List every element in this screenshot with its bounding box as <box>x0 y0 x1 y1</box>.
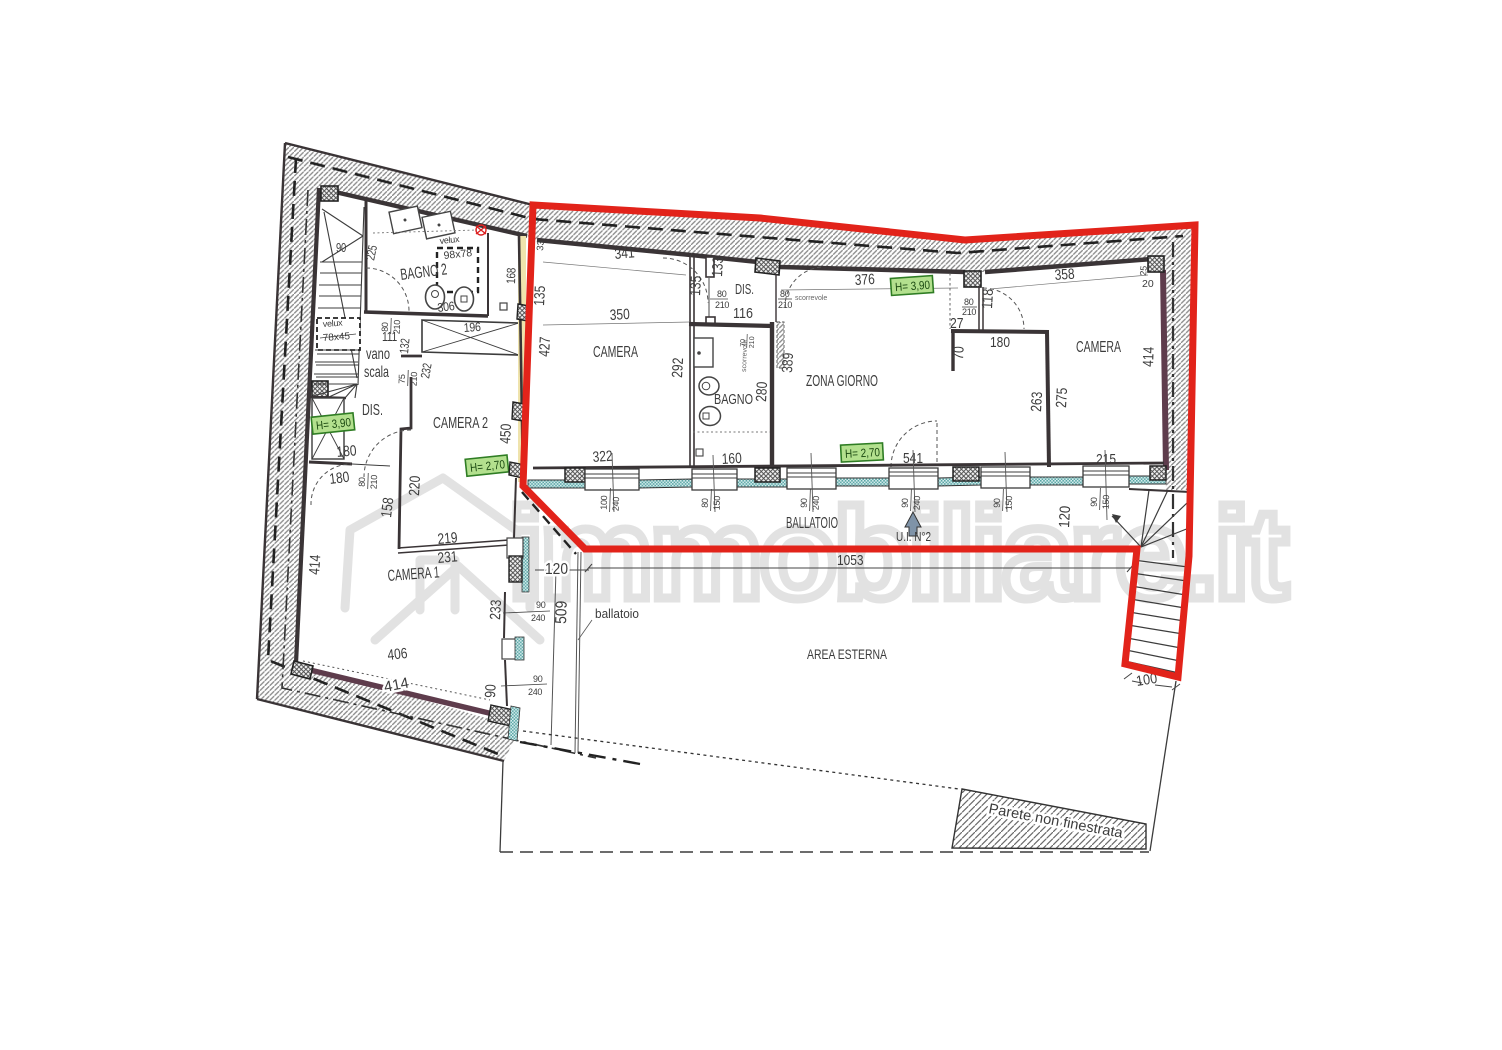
svg-text:20: 20 <box>1142 278 1154 290</box>
svg-text:231: 231 <box>437 548 458 567</box>
svg-text:CAMERA: CAMERA <box>593 344 638 361</box>
svg-text:78x45: 78x45 <box>322 331 350 344</box>
svg-text:velux: velux <box>439 234 460 246</box>
svg-text:135: 135 <box>687 275 705 296</box>
svg-text:ZONA GIORNO: ZONA GIORNO <box>806 373 878 390</box>
svg-text:210: 210 <box>962 307 976 317</box>
svg-text:120: 120 <box>545 561 568 578</box>
svg-text:406: 406 <box>387 645 409 664</box>
svg-text:AREA ESTERNA: AREA ESTERNA <box>807 646 887 662</box>
svg-text:90: 90 <box>482 684 500 698</box>
svg-text:306: 306 <box>437 299 456 315</box>
svg-text:376: 376 <box>854 271 875 289</box>
svg-text:210: 210 <box>369 475 379 490</box>
svg-text:168: 168 <box>504 267 519 284</box>
svg-text:292: 292 <box>669 357 687 378</box>
svg-text:70: 70 <box>950 346 968 360</box>
svg-text:275: 275 <box>1053 387 1071 408</box>
svg-text:160: 160 <box>721 450 742 468</box>
svg-text:414: 414 <box>1140 347 1158 368</box>
svg-text:240: 240 <box>611 497 621 512</box>
svg-text:scorrevole: scorrevole <box>741 339 749 372</box>
svg-text:1053: 1053 <box>837 552 864 569</box>
svg-text:BAGNO 2: BAGNO 2 <box>399 261 448 284</box>
svg-text:H= 2,70: H= 2,70 <box>845 445 881 461</box>
svg-text:118: 118 <box>979 288 997 309</box>
svg-text:232: 232 <box>418 362 434 379</box>
svg-text:90: 90 <box>1089 497 1099 507</box>
svg-text:233: 233 <box>487 599 505 620</box>
svg-text:CAMERA 2: CAMERA 2 <box>433 415 488 432</box>
svg-text:33: 33 <box>535 240 547 251</box>
svg-text:263: 263 <box>1028 391 1046 412</box>
svg-text:196: 196 <box>463 320 481 335</box>
svg-text:DIS.: DIS. <box>362 402 383 419</box>
svg-text:450: 450 <box>497 423 515 444</box>
svg-text:358: 358 <box>1054 266 1075 284</box>
svg-text:210: 210 <box>749 336 756 348</box>
svg-text:H= 3,90: H= 3,90 <box>895 278 931 294</box>
svg-text:135: 135 <box>531 285 549 306</box>
svg-text:341: 341 <box>614 244 635 263</box>
svg-text:240: 240 <box>912 496 922 511</box>
svg-text:velux: velux <box>322 318 343 329</box>
svg-text:BALLATOIO: BALLATOIO <box>786 515 838 532</box>
svg-text:DIS.: DIS. <box>735 281 754 298</box>
svg-text:CAMERA 1: CAMERA 1 <box>387 564 440 585</box>
svg-text:220: 220 <box>406 475 424 496</box>
svg-text:90: 90 <box>533 674 543 684</box>
svg-text:75: 75 <box>397 374 407 384</box>
svg-text:150: 150 <box>1004 496 1014 511</box>
svg-text:ballatoio: ballatoio <box>595 606 639 621</box>
svg-text:90: 90 <box>799 498 809 508</box>
svg-text:132: 132 <box>397 338 413 355</box>
svg-text:scorrevole: scorrevole <box>795 295 827 302</box>
svg-text:80: 80 <box>357 477 367 487</box>
svg-text:116: 116 <box>733 305 753 322</box>
svg-text:180: 180 <box>328 469 350 488</box>
svg-text:90: 90 <box>336 241 346 255</box>
svg-text:219: 219 <box>437 529 458 548</box>
svg-text:427: 427 <box>536 336 554 357</box>
svg-text:350: 350 <box>609 306 630 324</box>
svg-text:210: 210 <box>392 320 402 335</box>
svg-text:80: 80 <box>964 297 974 307</box>
svg-text:98x78: 98x78 <box>443 247 473 262</box>
svg-text:CAMERA: CAMERA <box>1076 339 1121 356</box>
svg-text:90: 90 <box>900 498 910 508</box>
svg-text:scala: scala <box>364 364 389 381</box>
svg-text:25: 25 <box>1138 265 1149 276</box>
svg-text:280: 280 <box>753 381 771 402</box>
svg-text:389: 389 <box>779 352 797 373</box>
svg-text:immobiliare.it: immobiliare.it <box>508 483 1288 626</box>
svg-text:150: 150 <box>1101 495 1111 510</box>
svg-text:133: 133 <box>709 256 727 277</box>
svg-text:180: 180 <box>990 334 1010 351</box>
svg-text:210: 210 <box>715 300 729 310</box>
svg-text:80: 80 <box>700 498 710 508</box>
svg-text:120: 120 <box>1056 505 1074 528</box>
svg-text:80: 80 <box>717 289 727 299</box>
svg-text:vano: vano <box>366 346 390 363</box>
svg-text:180: 180 <box>336 442 357 461</box>
svg-text:240: 240 <box>811 496 821 511</box>
svg-text:240: 240 <box>528 687 542 697</box>
svg-text:509: 509 <box>553 600 571 624</box>
svg-text:322: 322 <box>592 448 613 466</box>
svg-text:BAGNO: BAGNO <box>714 391 753 408</box>
svg-text:100: 100 <box>599 495 609 510</box>
svg-text:80: 80 <box>380 322 390 332</box>
svg-text:225: 225 <box>363 244 380 262</box>
svg-text:158: 158 <box>378 497 397 519</box>
svg-text:150: 150 <box>712 496 722 511</box>
svg-text:240: 240 <box>531 613 545 623</box>
svg-text:414: 414 <box>306 554 324 575</box>
svg-text:90: 90 <box>536 600 546 610</box>
svg-text:90: 90 <box>992 498 1002 508</box>
svg-text:U.I. N°2: U.I. N°2 <box>896 530 931 544</box>
